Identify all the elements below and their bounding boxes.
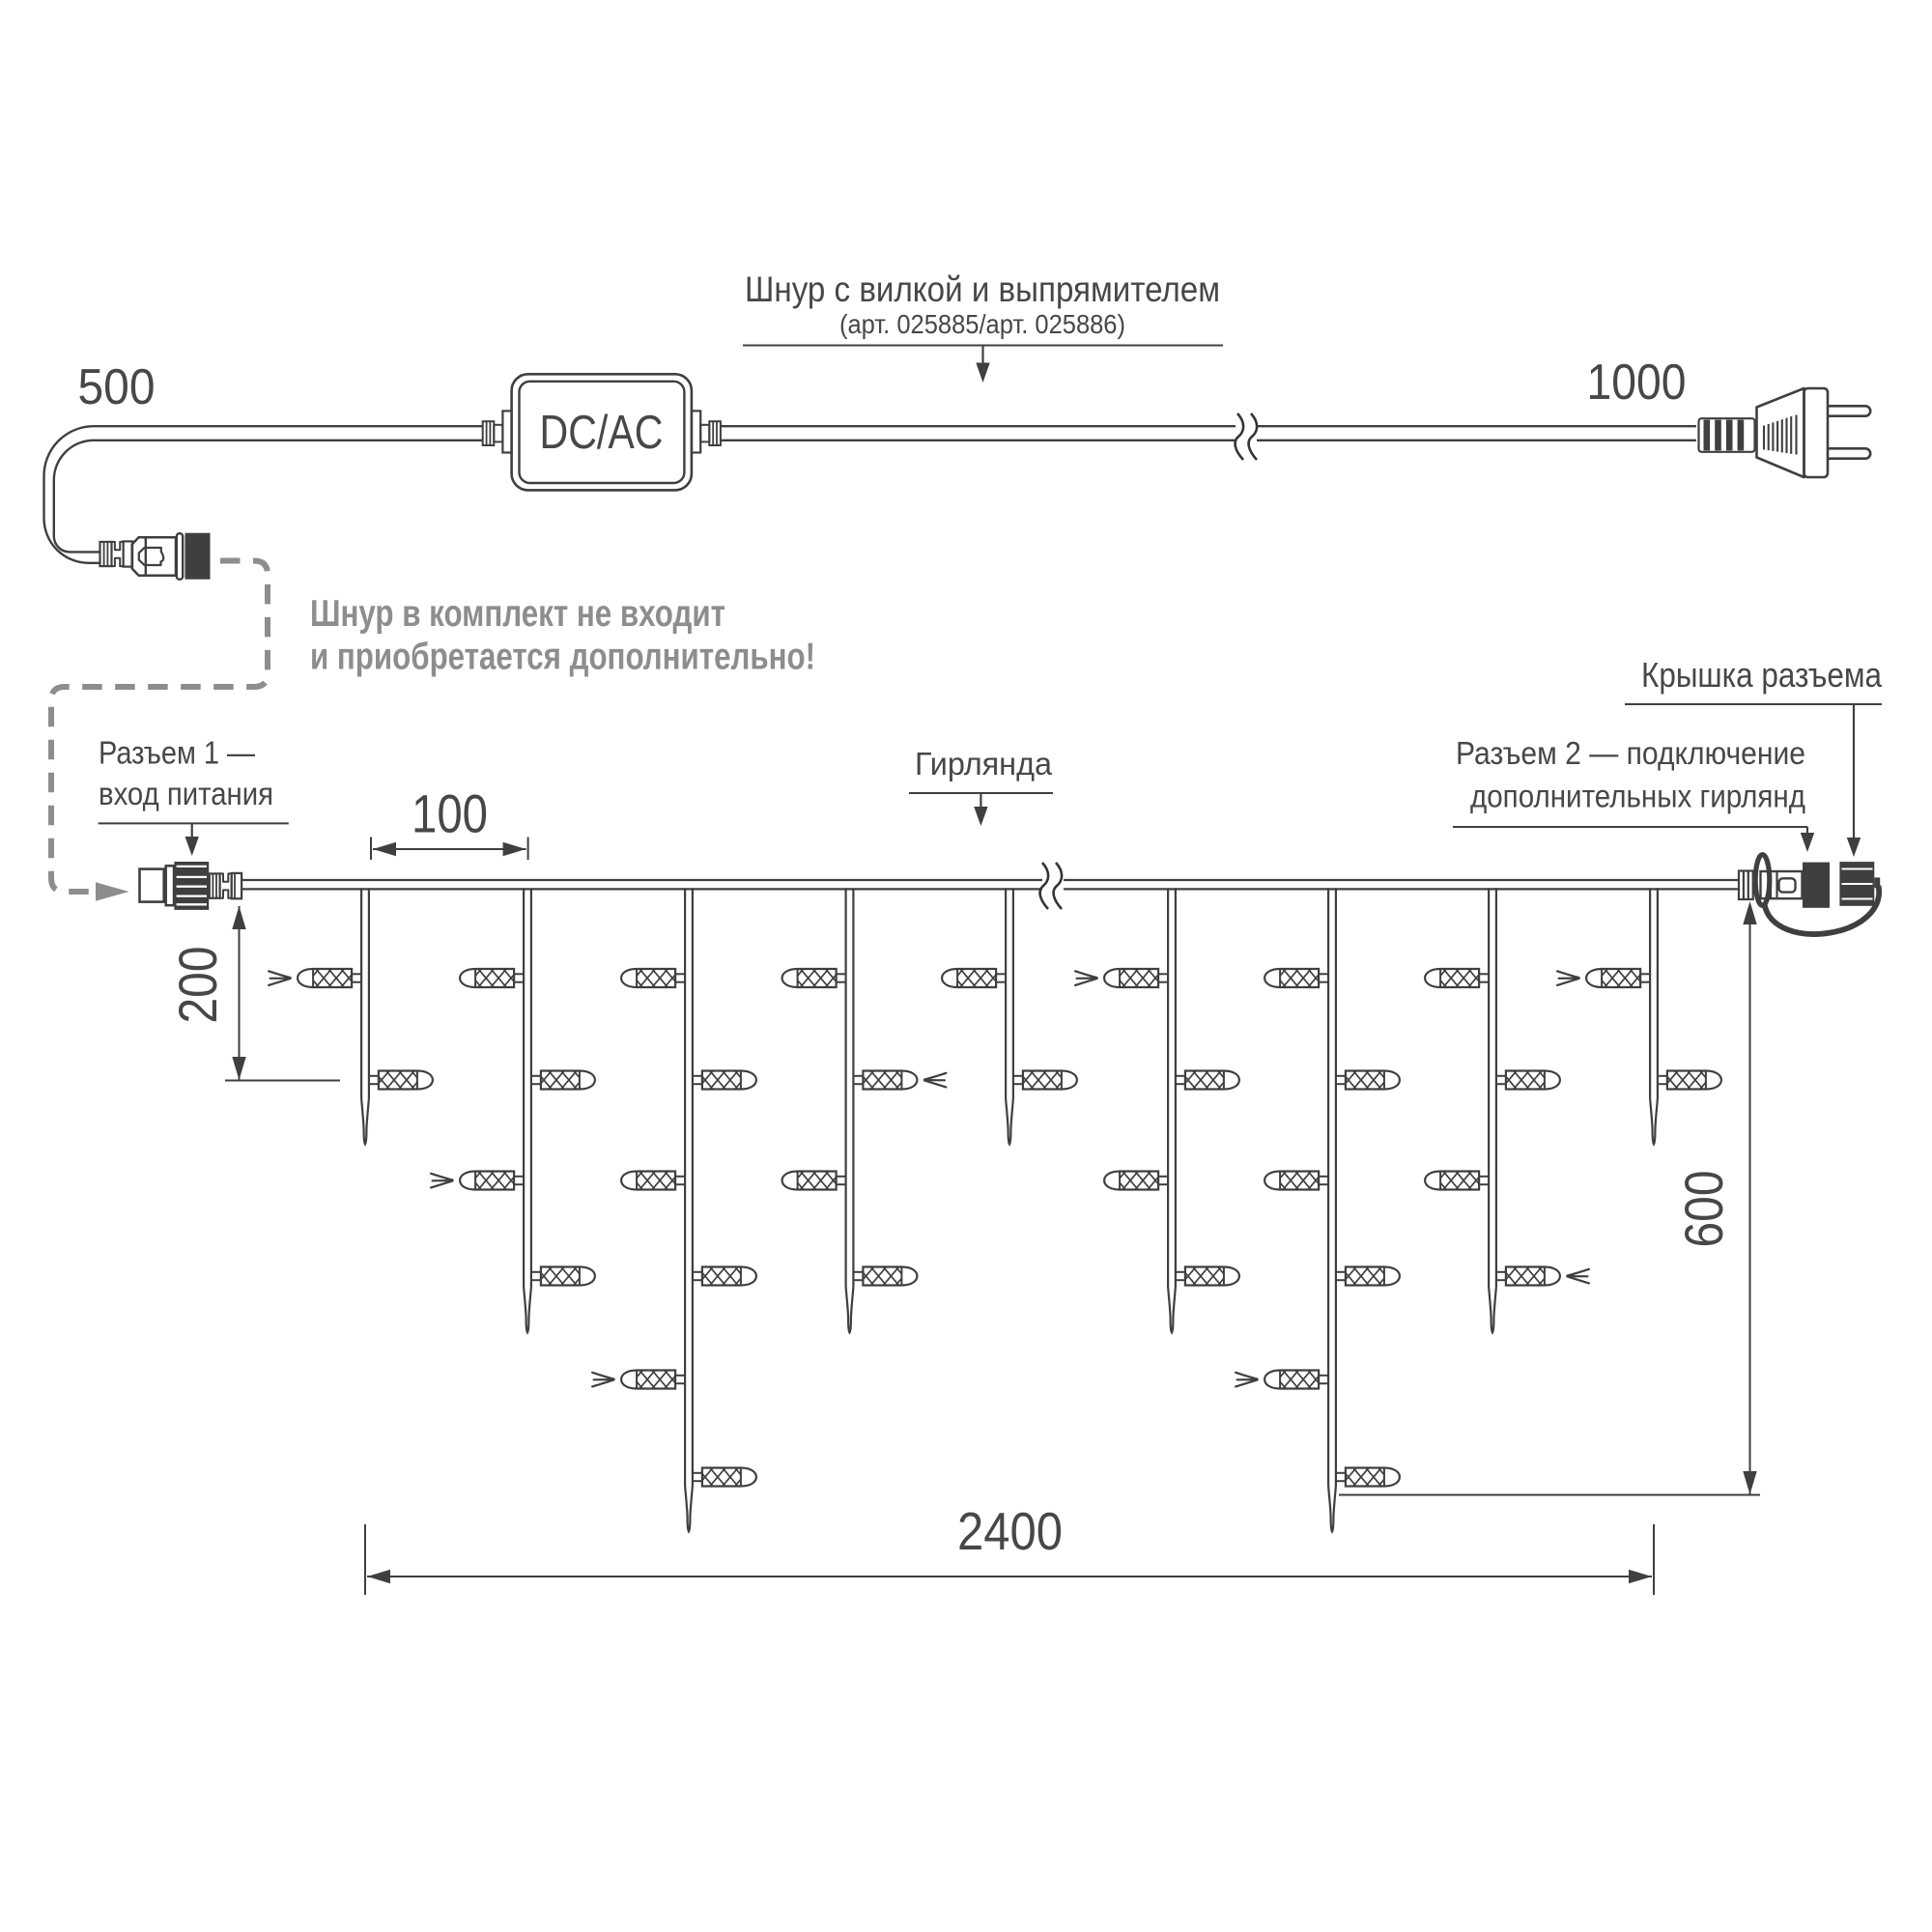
svg-text:Шнур с вилкой и выпрямителем: Шнур с вилкой и выпрямителем	[745, 270, 1220, 309]
svg-text:100: 100	[412, 783, 488, 844]
svg-text:дополнительных гирлянд: дополнительных гирлянд	[1470, 779, 1805, 814]
svg-text:и приобретается дополнительно!: и приобретается дополнительно!	[310, 637, 815, 678]
svg-text:Гирлянда: Гирлянда	[915, 746, 1053, 781]
svg-text:200: 200	[167, 947, 228, 1024]
svg-text:500: 500	[78, 359, 156, 415]
svg-text:600: 600	[1673, 1171, 1734, 1248]
svg-text:2400: 2400	[957, 1501, 1063, 1561]
svg-text:Разъем 2 — подключение: Разъем 2 — подключение	[1456, 735, 1805, 771]
svg-text:1000: 1000	[1587, 355, 1687, 411]
svg-text:DC/AC: DC/AC	[540, 407, 664, 459]
svg-text:Разъем 1 —: Разъем 1 —	[99, 735, 255, 771]
svg-text:(арт. 025885/арт. 025886): (арт. 025885/арт. 025886)	[839, 309, 1125, 339]
svg-text:вход питания: вход питания	[99, 776, 273, 811]
svg-text:Шнур в комплект не входит: Шнур в комплект не входит	[310, 593, 725, 635]
svg-text:Крышка разъема: Крышка разъема	[1641, 655, 1883, 695]
